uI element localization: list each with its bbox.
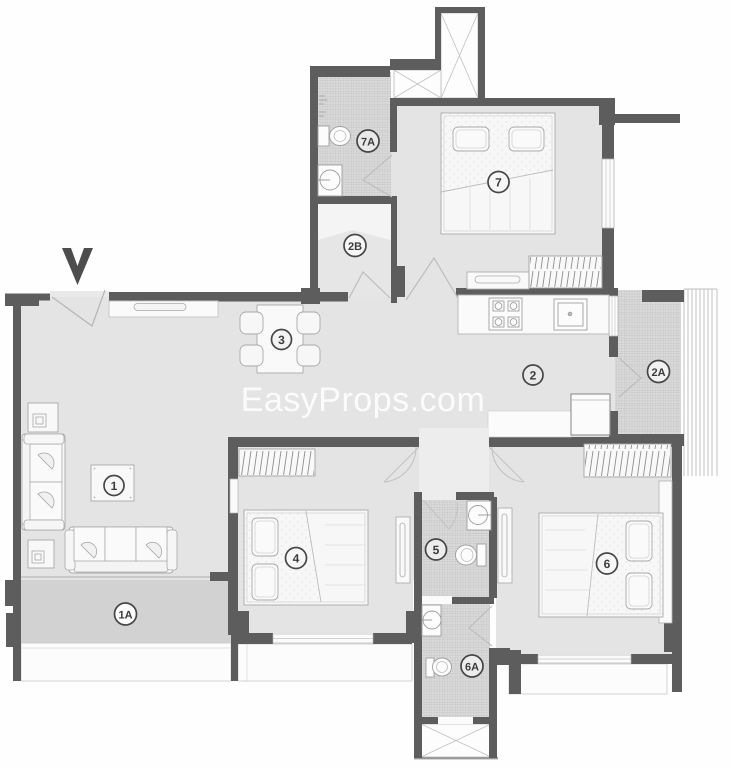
svg-text:6A: 6A xyxy=(465,662,479,674)
svg-text:5: 5 xyxy=(433,543,440,557)
svg-text:1: 1 xyxy=(111,479,118,493)
svg-text:2B: 2B xyxy=(348,241,362,253)
svg-text:2A: 2A xyxy=(651,367,665,379)
svg-text:4: 4 xyxy=(293,552,300,566)
svg-text:6: 6 xyxy=(604,557,611,571)
svg-text:2: 2 xyxy=(530,369,537,383)
svg-text:3: 3 xyxy=(278,333,285,347)
svg-text:7: 7 xyxy=(495,176,502,190)
svg-text:7A: 7A xyxy=(361,137,375,149)
svg-text:EasyProps.com: EasyProps.com xyxy=(241,381,486,419)
svg-text:1A: 1A xyxy=(118,610,132,622)
